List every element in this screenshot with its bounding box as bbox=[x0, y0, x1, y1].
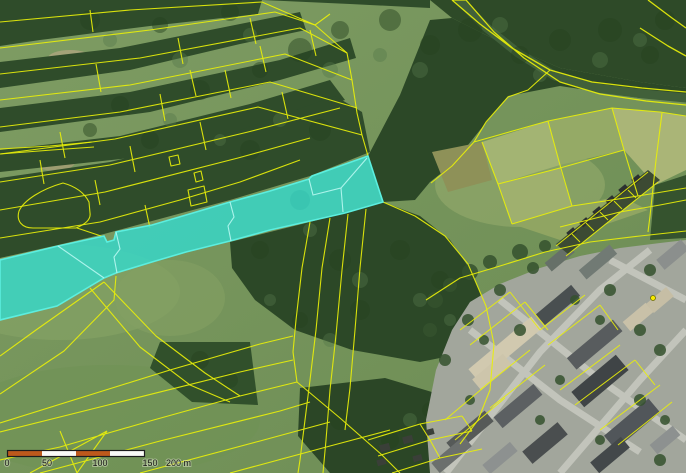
scale-bar-segment bbox=[8, 451, 42, 456]
scale-bar-segment bbox=[42, 451, 76, 456]
scale-label-50: 50 bbox=[42, 458, 52, 468]
scale-bar-segment bbox=[76, 451, 110, 456]
scale-label-150: 150 bbox=[142, 458, 157, 468]
map-viewport[interactable]: 0 50 100 150 200 m bbox=[0, 0, 686, 473]
map-canvas[interactable]: 0 50 100 150 200 m bbox=[0, 0, 686, 473]
scale-bar-segment bbox=[110, 451, 144, 456]
scale-label-0: 0 bbox=[4, 458, 9, 468]
scale-label-200m: 200 m bbox=[166, 458, 191, 468]
scale-label-100: 100 bbox=[92, 458, 107, 468]
parcel-point-marker bbox=[651, 296, 656, 301]
